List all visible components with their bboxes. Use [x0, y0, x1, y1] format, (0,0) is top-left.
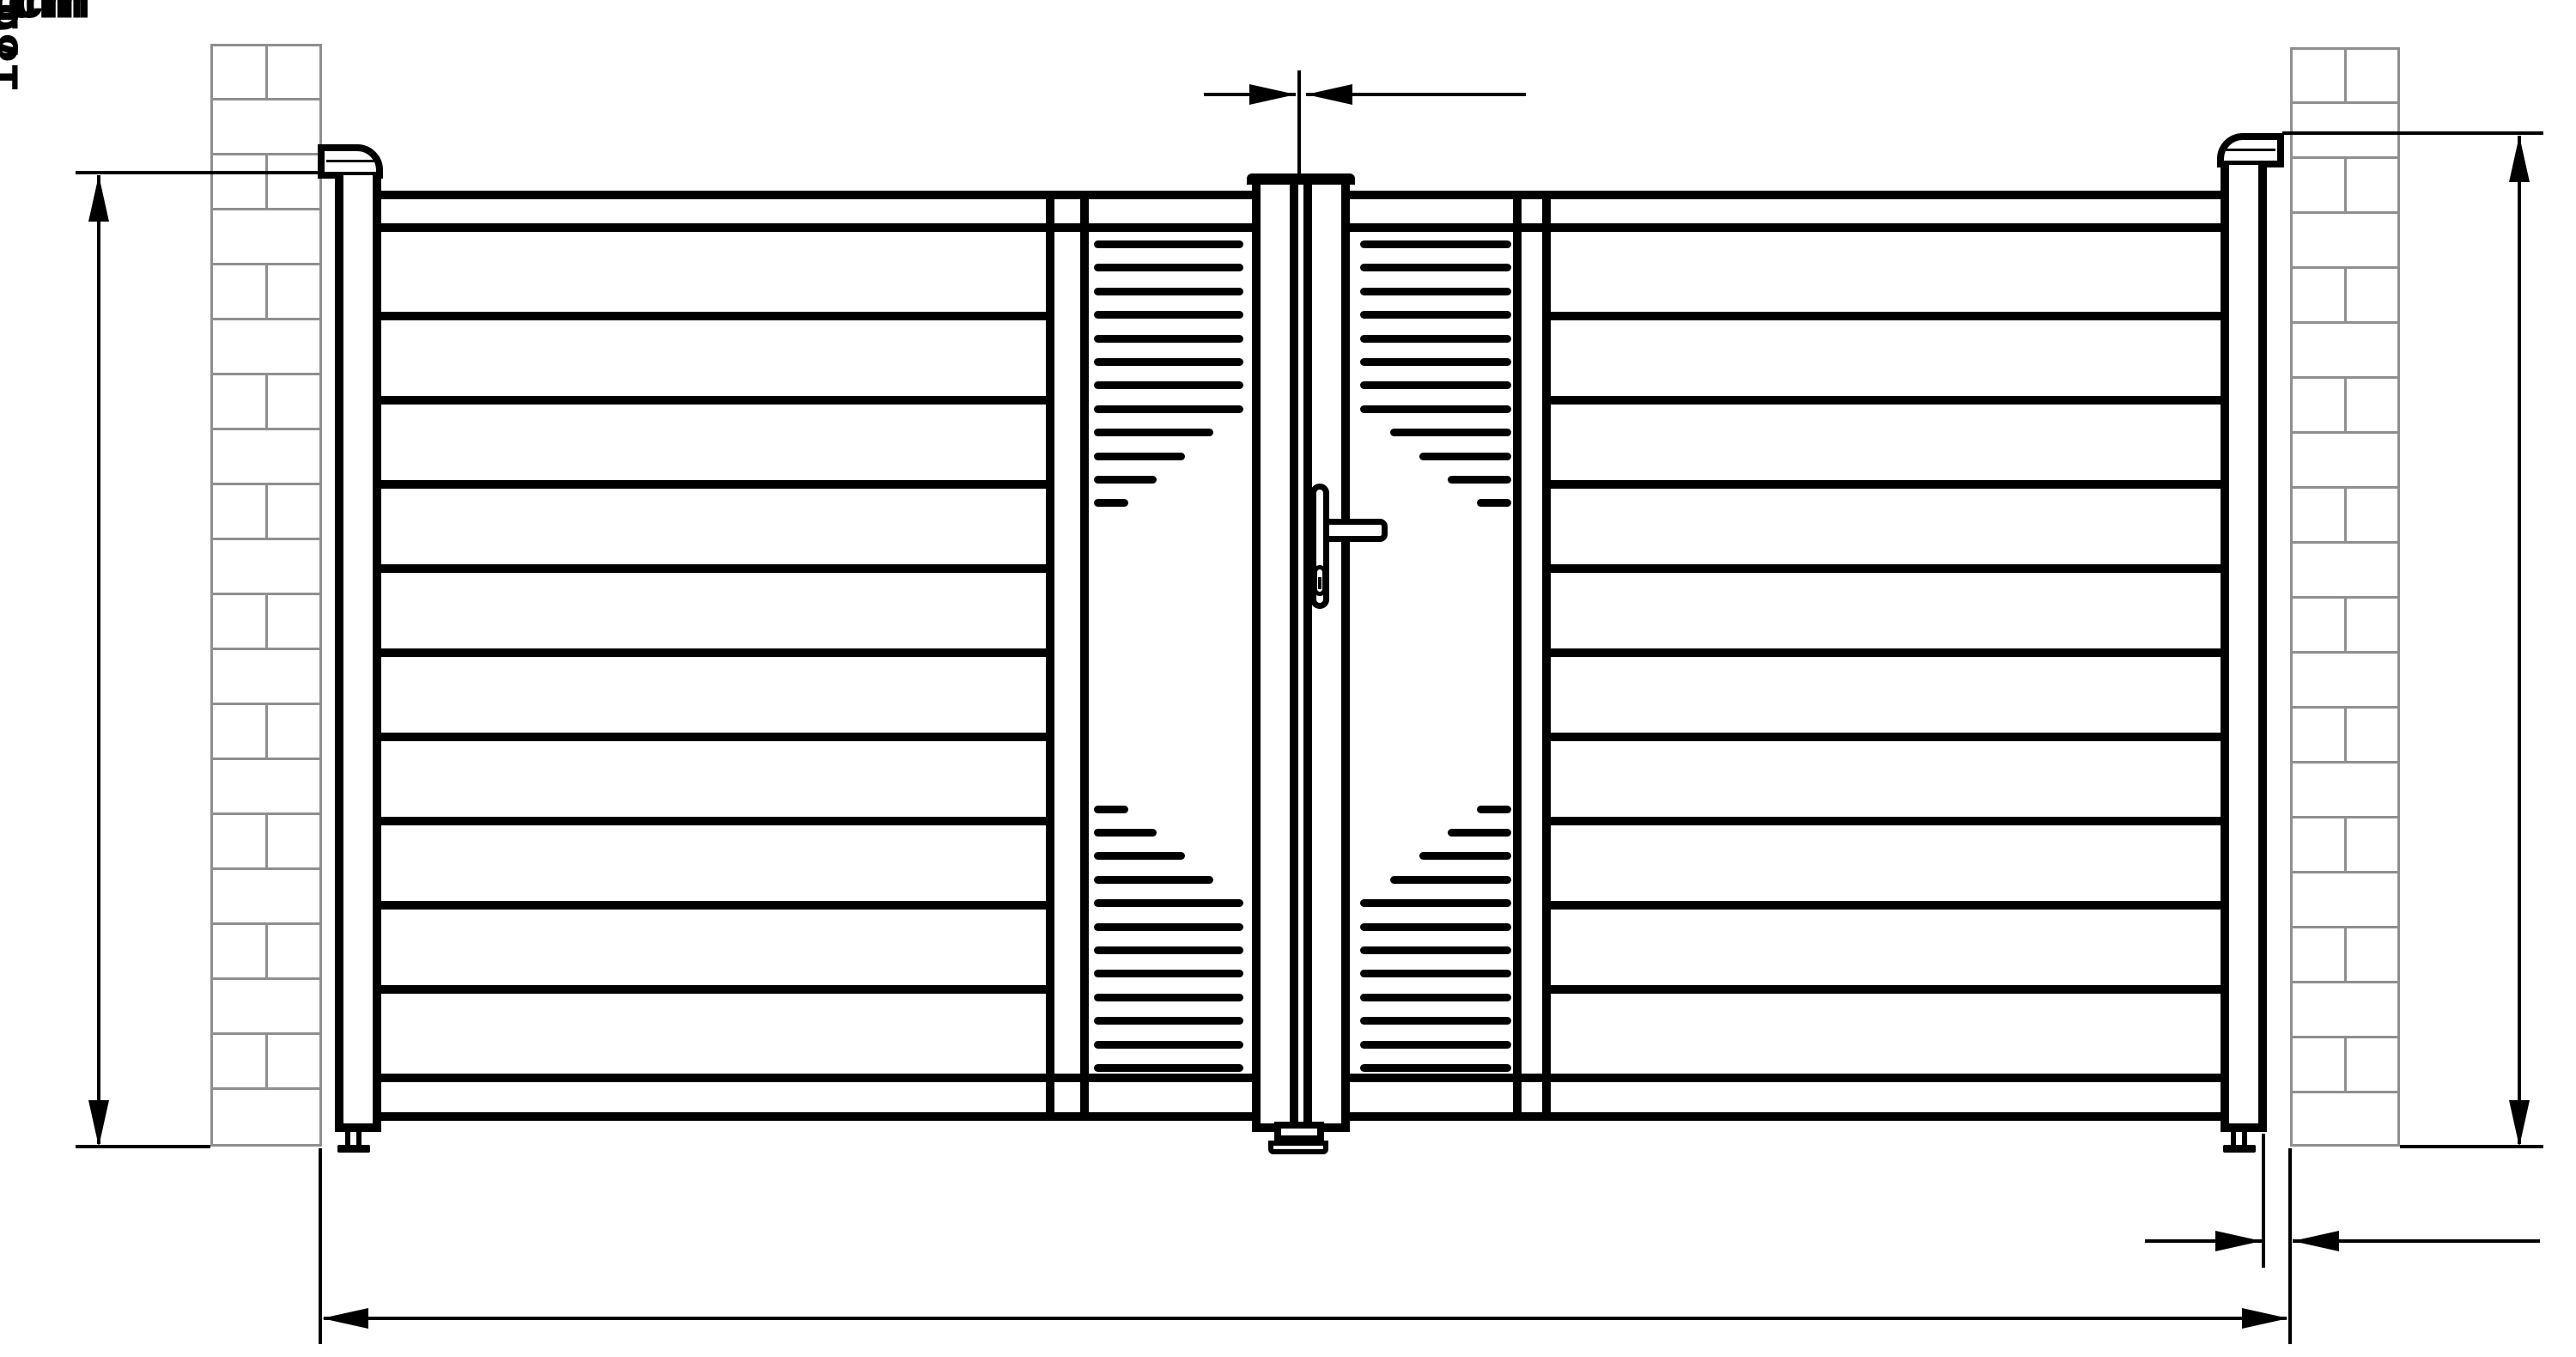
dimension-arrowhead	[88, 1100, 109, 1147]
brick-joint-line	[2344, 927, 2347, 982]
deco-dash	[1360, 1041, 1511, 1049]
deco-dash	[1094, 806, 1128, 813]
ground-stop-plate	[1268, 1141, 1328, 1154]
deco-dash	[1360, 923, 1511, 931]
brick-joint-line	[2344, 597, 2347, 652]
deco-dash	[1094, 1064, 1243, 1072]
brick-course-line	[210, 428, 322, 430]
slat-line	[1551, 733, 2221, 741]
deco-dash	[1094, 335, 1243, 343]
brick-joint-line	[265, 264, 268, 319]
deco-dash	[1094, 970, 1243, 977]
brick-course-line	[2290, 1091, 2400, 1093]
brick-joint-line	[2344, 157, 2347, 212]
slat-line	[381, 564, 1054, 573]
slat-line	[1551, 396, 2221, 405]
clearance-extension-line	[2262, 1134, 2265, 1268]
deco-dash	[1419, 852, 1511, 860]
brick-course-line	[2290, 211, 2400, 214]
deco-dash	[1360, 1017, 1511, 1025]
deco-dash	[1094, 876, 1213, 884]
brick-joint-line	[2344, 707, 2347, 762]
gate-technical-drawing: 7 mm 176 cm 181 cm 355 cm 2,5 cm	[0, 0, 2576, 1357]
brick-course-line	[210, 1087, 322, 1090]
deco-dash	[1094, 288, 1243, 295]
leaf-bottom-rail	[1350, 1074, 2221, 1121]
deco-dash	[1094, 1041, 1243, 1049]
brick-joint-line	[265, 1033, 268, 1088]
meeting-stile	[1303, 184, 1350, 1132]
brick-course-line	[2290, 101, 2400, 104]
deco-dash	[1094, 429, 1213, 436]
brick-course-line	[2290, 321, 2400, 324]
foot-prong	[2242, 1132, 2247, 1146]
brick-course-line	[210, 318, 322, 320]
panel-stile-line	[1080, 191, 1089, 1121]
dimension-arrowhead	[2242, 1308, 2288, 1329]
brick-joint-line	[265, 484, 268, 539]
brick-joint-line	[2344, 817, 2347, 872]
foot-base-plate	[337, 1145, 370, 1153]
deco-dash	[1094, 994, 1243, 1001]
brick-joint-line	[2344, 267, 2347, 322]
foot-prong	[356, 1132, 361, 1146]
leaf-top-rail	[1350, 191, 2221, 232]
slat-line	[381, 312, 1054, 320]
height-left-dim-line	[97, 175, 100, 1144]
slat-line	[1551, 817, 2221, 825]
deco-dash	[1448, 476, 1511, 484]
brick-course-line	[210, 977, 322, 980]
handle-lever	[1319, 519, 1388, 542]
height-right-top-tick	[2282, 131, 2543, 135]
deco-dash	[1360, 240, 1511, 248]
deco-dash	[1094, 381, 1243, 389]
meeting-stile-cap	[1247, 173, 1355, 185]
brick-course-line	[210, 648, 322, 650]
slat-line	[381, 733, 1054, 741]
dimension-arrowhead	[2215, 1231, 2262, 1251]
slat-line	[1551, 985, 2221, 994]
meeting-stile	[1252, 184, 1298, 1132]
post-cap	[318, 144, 383, 179]
deco-dash	[1360, 970, 1511, 977]
brick-course-line	[210, 98, 322, 100]
deco-dash	[1360, 288, 1511, 295]
brick-joint-line	[265, 813, 268, 868]
foot-prong	[2231, 1132, 2236, 1146]
slat-line	[381, 480, 1054, 489]
deco-dash	[1094, 1017, 1243, 1025]
deco-dash	[1094, 852, 1185, 860]
brick-course-line	[2290, 541, 2400, 544]
deco-dash	[1094, 476, 1157, 484]
width-extension-right	[2288, 1148, 2292, 1344]
dimension-arrowhead	[2293, 1231, 2339, 1251]
brick-joint-line	[265, 593, 268, 648]
brick-course-line	[210, 538, 322, 540]
slat-line	[381, 901, 1054, 910]
slat-line	[381, 817, 1054, 825]
dimension-arrowhead	[322, 1308, 368, 1329]
brick-course-line	[210, 867, 322, 870]
brick-joint-line	[2344, 47, 2347, 102]
brick-joint-line	[265, 923, 268, 978]
gap-extension-line	[1297, 70, 1301, 175]
post-body	[2221, 165, 2267, 1132]
deco-dash	[1360, 358, 1511, 366]
panel-stile-line	[1046, 191, 1054, 1121]
deco-dash	[1390, 876, 1511, 884]
dimension-label-clearance: 2,5 cm	[0, 0, 85, 30]
deco-dash	[1360, 946, 1511, 954]
brick-course-line	[2290, 651, 2400, 654]
leaf-bottom-rail	[381, 1074, 1252, 1121]
brick-joint-line	[265, 44, 268, 99]
deco-dash	[1360, 405, 1511, 413]
deco-dash	[1390, 429, 1511, 436]
dimension-arrowhead	[2509, 136, 2530, 182]
dimension-arrowhead	[1249, 84, 1296, 105]
deco-dash	[1419, 453, 1511, 460]
slat-line	[1551, 901, 2221, 910]
keyhole-slit	[1318, 577, 1321, 589]
brick-joint-line	[265, 154, 268, 209]
dimension-arrowhead	[88, 175, 109, 222]
post-cap	[2217, 133, 2284, 167]
brick-course-line	[2290, 431, 2400, 434]
deco-dash	[1360, 899, 1511, 907]
deco-dash	[1094, 923, 1243, 931]
slat-line	[381, 985, 1054, 994]
brick-course-line	[210, 758, 322, 760]
deco-dash	[1094, 405, 1243, 413]
foot-base-plate	[2223, 1145, 2256, 1153]
height-left-top-tick	[76, 171, 319, 174]
deco-dash	[1094, 453, 1185, 460]
brick-joint-line	[2344, 487, 2347, 542]
deco-dash	[1360, 381, 1511, 389]
deco-dash	[1094, 358, 1243, 366]
deco-dash	[1360, 994, 1511, 1001]
brick-course-line	[2290, 981, 2400, 983]
brick-joint-line	[2344, 377, 2347, 432]
deco-dash	[1360, 311, 1511, 319]
post-cap-inner-line	[2226, 149, 2275, 151]
width-dim-line	[324, 1317, 2287, 1320]
deco-dash	[1094, 899, 1243, 907]
dimension-arrowhead	[2509, 1100, 2530, 1147]
height-right-dim-line	[2518, 136, 2521, 1144]
deco-dash	[1094, 240, 1243, 248]
post-cap-inner-line	[326, 160, 374, 162]
deco-dash	[1448, 829, 1511, 837]
slat-line	[381, 648, 1054, 657]
ground-stop-block	[1274, 1122, 1324, 1142]
slat-line	[381, 396, 1054, 405]
slat-line	[1551, 564, 2221, 573]
slat-line	[1551, 312, 2221, 320]
deco-dash	[1094, 946, 1243, 954]
deco-dash	[1477, 499, 1511, 507]
slat-line	[1551, 648, 2221, 657]
brick-course-line	[2290, 871, 2400, 873]
deco-dash	[1360, 264, 1511, 271]
deco-dash	[1094, 499, 1128, 507]
deco-dash	[1360, 335, 1511, 343]
leaf-top-rail	[381, 191, 1252, 232]
slat-line	[1551, 480, 2221, 489]
foot-prong	[345, 1132, 350, 1146]
dimension-arrowhead	[1306, 84, 1352, 105]
brick-course-line	[210, 208, 322, 210]
deco-dash	[1094, 829, 1157, 837]
brick-joint-line	[265, 374, 268, 429]
post-body	[335, 175, 381, 1132]
brick-joint-line	[265, 703, 268, 758]
panel-stile-line	[1513, 191, 1522, 1121]
brick-joint-line	[2344, 1037, 2347, 1092]
deco-dash	[1094, 311, 1243, 319]
panel-stile-line	[1542, 191, 1551, 1121]
brick-course-line	[2290, 761, 2400, 764]
deco-dash	[1094, 264, 1243, 271]
deco-dash	[1360, 1064, 1511, 1072]
deco-dash	[1477, 806, 1511, 813]
